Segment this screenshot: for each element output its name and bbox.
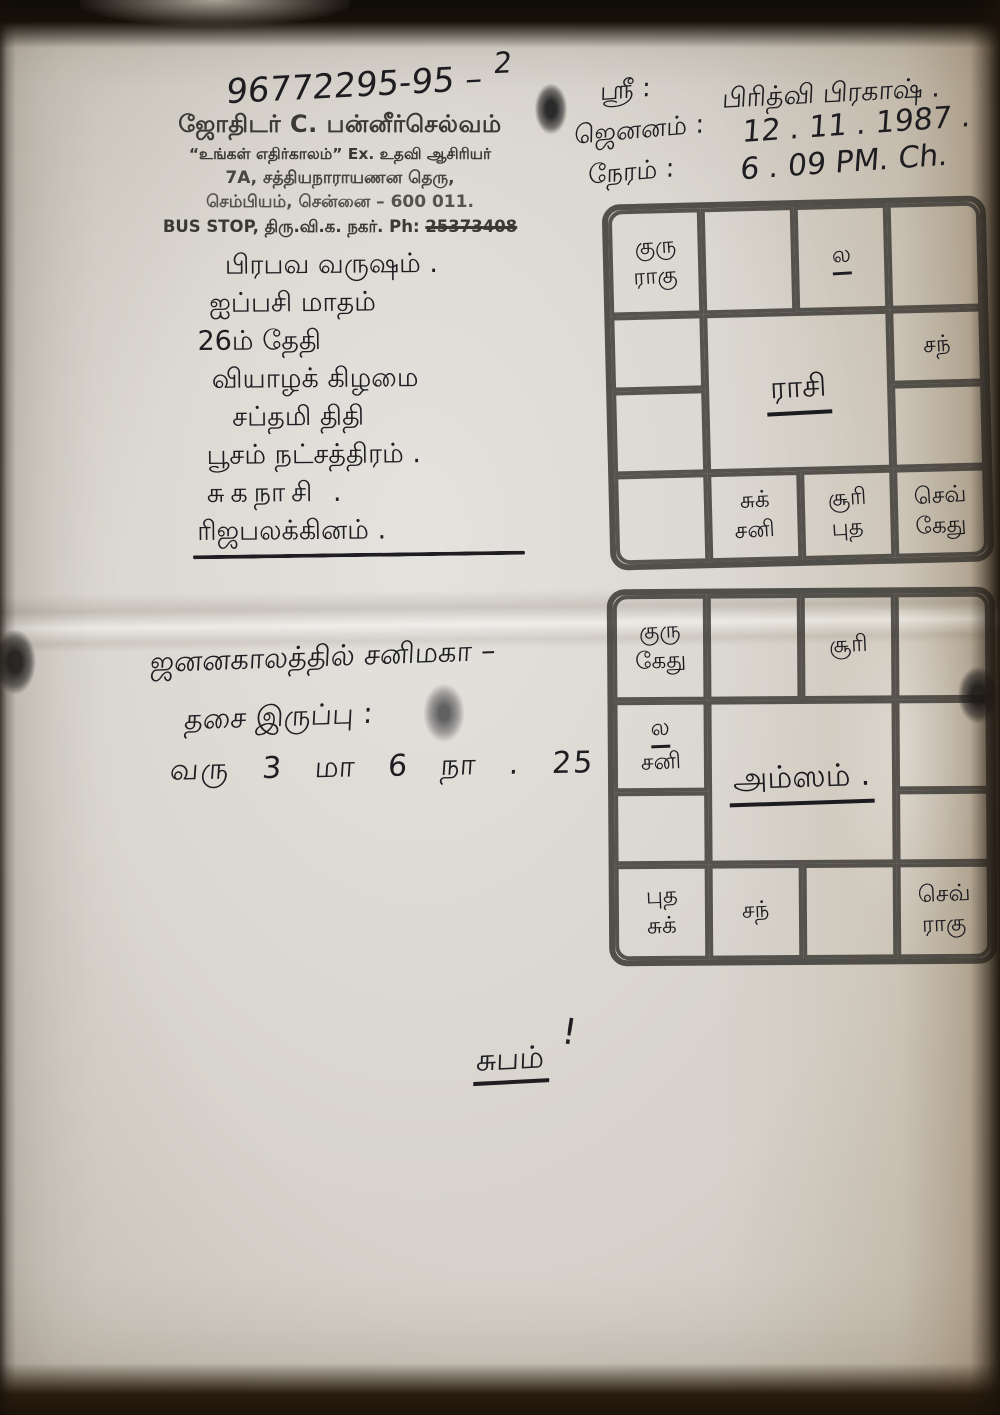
letterhead-tagline: “உங்கள் எதிர்காலம்” Ex. உதவி ஆசிரியர் [148, 145, 532, 165]
letterhead-address-line2: செம்பியம், சென்னை – 600 011. [148, 192, 532, 214]
rasi-cell-r4c2: சுக் சனி [707, 471, 802, 562]
amsam-cell-r1c3: சூரி [801, 593, 896, 699]
amsam-chart: குரு கேது சூரி ல சனி அம்ஸம் . புத சுக் ச… [607, 587, 998, 967]
rasi-cell-r2c4: சந் [889, 308, 984, 385]
planet-label: சனி [640, 748, 681, 779]
rasi-cell-r1c2 [701, 206, 797, 314]
rasi-cell-r4c1 [614, 474, 709, 565]
planet-label: ராகு [921, 910, 966, 941]
amsam-chart-title: அம்ஸம் . [729, 757, 876, 808]
amsam-cell-r4c2: சந் [709, 864, 804, 960]
planet-label: குரு [634, 232, 677, 263]
ink-smudge-middle [418, 676, 470, 750]
planet-label: கேது [634, 647, 686, 678]
subam-text: சுபம் [473, 1039, 551, 1086]
rasi-cell-r3c1 [612, 389, 707, 476]
rasi-cell-r1c1: குரு ராகு [608, 208, 704, 316]
planet-label: சந் [742, 897, 771, 927]
rasi-cell-r2c1 [610, 314, 705, 391]
scanned-horoscope-document: 96772295-95 –2 ஜோதிடர் C. பன்னீர்செல்வம்… [0, 0, 1000, 1415]
note-line: வியாழக் கிழமை [212, 359, 439, 399]
amsam-cell-r3c1 [614, 792, 709, 866]
amsam-cell-r3c4 [896, 790, 991, 864]
bus-stop-text: BUS STOP, திரு.வி.க. நகர். Ph: [163, 217, 426, 236]
note-line: ஐப்பசி மாதம் [209, 283, 438, 323]
planet-label: ராகு [633, 262, 679, 294]
note-line: சுகநாசி . [207, 473, 440, 513]
planet-label: சூரி [827, 484, 867, 515]
amsam-cell-r4c3 [803, 863, 898, 959]
rasi-chart-title: ராசி [765, 367, 832, 416]
note-line: சப்தமி திதி [232, 397, 439, 437]
planet-label: சுக் [647, 912, 678, 942]
struck-phone-number: 25373408 [425, 217, 517, 236]
ink-smudge-right-edge [952, 658, 1000, 732]
amsam-cell-r1c2 [707, 594, 802, 700]
amsam-cell-r4c1: புத சுக் [615, 865, 710, 961]
planet-label: கேது [915, 511, 968, 543]
name-label: ஸ்ரீ : [600, 74, 651, 108]
lagnam-label: ல [650, 715, 670, 749]
amsam-cell-r1c1: குரு கேது [613, 595, 708, 701]
rasi-chart-center: ராசி [703, 310, 893, 474]
letterhead-address-line1: 7A, சத்தியநாராயணன தெரு, [148, 168, 532, 190]
astrologer-name: ஜோதிடர் C. பன்னீர்செல்வம் [148, 110, 532, 141]
planet-label: சந் [922, 331, 951, 362]
amsam-cell-r4c4: செவ் ராகு [897, 863, 992, 959]
rasi-cell-r4c3: சூரி புத [800, 469, 895, 560]
planet-label: புத [831, 514, 865, 545]
planet-label: செவ் [917, 880, 971, 911]
note-line: பிரபவ வருஷம் . [225, 245, 438, 285]
letterhead-bus-stop-line: BUS STOP, திரு.வி.க. நகர். Ph: 25373408 [148, 217, 532, 239]
planet-label: சுக் [739, 486, 770, 517]
rasi-cell-r4c4: செவ் கேது [893, 467, 988, 558]
note-line: 26ம் தேதி [197, 321, 438, 361]
phone-number-superscript: 2 [492, 45, 513, 80]
amsam-cell-r2c1: ல சனி [613, 701, 708, 793]
note-line: ரிஜபலக்கினம் . [197, 511, 440, 551]
planet-label: சனி [734, 516, 776, 547]
lagnam-label: ல [831, 241, 852, 275]
letterhead: ஜோதிடர் C. பன்னீர்செல்வம் “உங்கள் எதிர்க… [148, 110, 532, 239]
rasi-cell-r1c4 [887, 202, 983, 310]
rasi-chart: குரு ராகு ல ராசி சந் சுக் சனி சூரி புத ச… [602, 195, 995, 570]
panchangam-notes: பிரபவ வருஷம் . ஐப்பசி மாதம் 26ம் தேதி வி… [195, 245, 441, 551]
closing-word: சுபம் [473, 1040, 550, 1080]
note-line: பூசம் நட்சத்திரம் . [206, 435, 439, 475]
rasi-cell-r1c3: ல [794, 204, 890, 312]
amsam-chart-center: அம்ஸம் . [707, 699, 896, 865]
rasi-cell-r3c4 [891, 382, 986, 469]
dasa-note-line2: தசை இருப்பு : [183, 697, 373, 737]
planet-label: சூரி [828, 631, 868, 662]
planet-label: புத [645, 882, 678, 912]
ink-smudge-top [530, 76, 572, 142]
planet-label: செவ் [913, 481, 967, 513]
planet-label: குரு [639, 618, 682, 649]
